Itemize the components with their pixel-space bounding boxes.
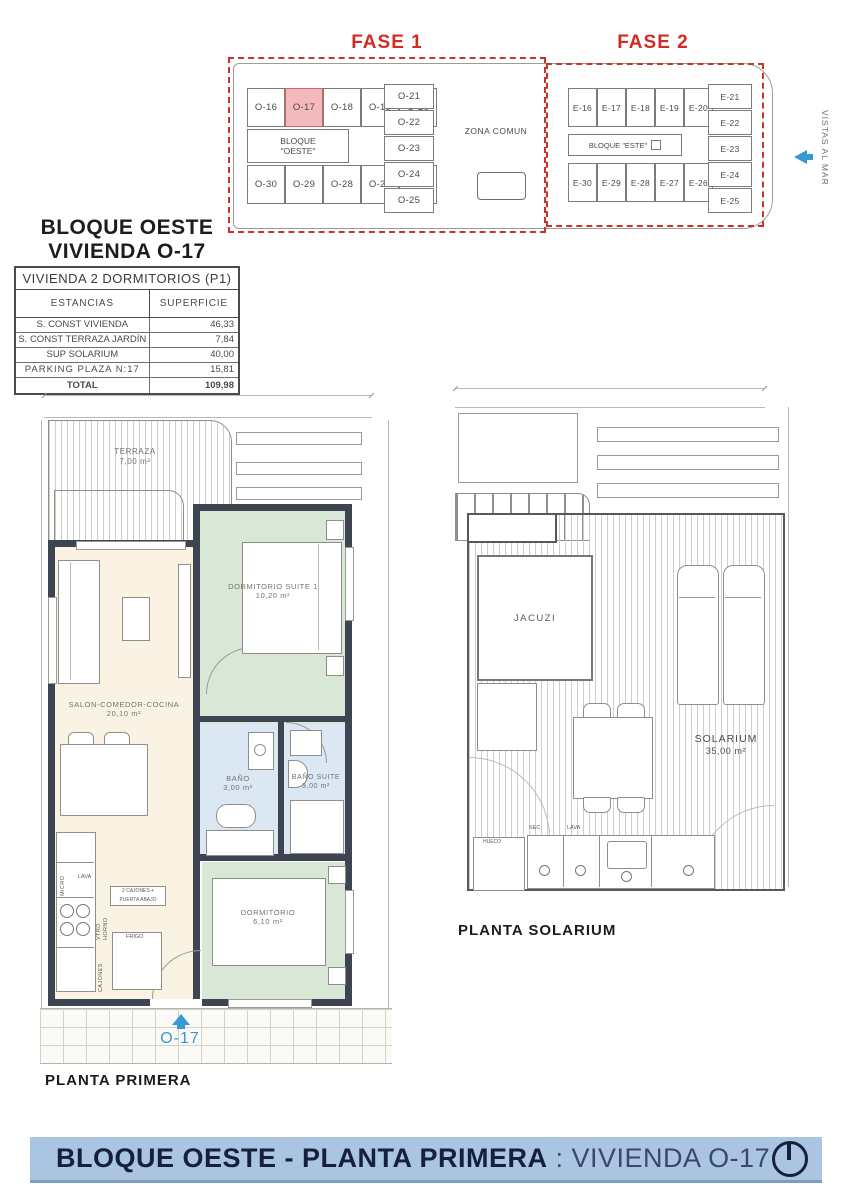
dimension-line bbox=[788, 407, 789, 887]
counter-divider bbox=[599, 835, 600, 887]
hob-burner bbox=[76, 904, 90, 918]
wall-suite-bath bbox=[198, 716, 346, 722]
walkway bbox=[40, 1008, 392, 1064]
planta-solarium-plan: JACUZI SOLARIUM 35,00 m² HUECO SEC LAVA bbox=[455, 385, 793, 910]
fridge-label: FRIGO bbox=[124, 934, 145, 940]
table-total-row: TOTAL 109,98 bbox=[16, 378, 238, 393]
table-row: S. CONST VIVIENDA 46,33 bbox=[16, 318, 238, 333]
pergola-slat bbox=[597, 483, 779, 498]
room-area: 20,10 m² bbox=[54, 709, 194, 718]
unit-cell: E-18 bbox=[626, 88, 655, 127]
block-oeste-line1: BLOQUE bbox=[280, 136, 315, 146]
shower bbox=[206, 830, 274, 856]
window bbox=[345, 890, 354, 954]
unit-cell: E-19 bbox=[655, 88, 684, 127]
salon-label: SALON-COMEDOR-COCINA 20,10 m² bbox=[54, 700, 194, 719]
terraza-label: TERRAZA 7,00 m² bbox=[70, 447, 200, 467]
row-name: PARKING PLAZA N:17 bbox=[16, 363, 150, 377]
table-title: VIVIENDA 2 DORMITORIOS (P1) bbox=[16, 268, 238, 290]
room-area: 7,00 m² bbox=[70, 457, 200, 467]
unit-cell: E-22 bbox=[708, 110, 752, 135]
room-area: 3,00 m² bbox=[202, 783, 274, 792]
planta-primera-caption: PLANTA PRIMERA bbox=[45, 1072, 192, 1089]
unit-cell: O-18 bbox=[323, 88, 361, 127]
deck-notch bbox=[469, 515, 557, 543]
kitchen-segment-line bbox=[56, 897, 94, 898]
unit-cell: E-17 bbox=[597, 88, 626, 127]
entrance-arrow-icon bbox=[172, 1014, 190, 1025]
entrance-opening bbox=[150, 999, 202, 1006]
tv-unit bbox=[178, 564, 191, 678]
unit-cell: E-23 bbox=[708, 136, 752, 161]
hob-burner bbox=[76, 922, 90, 936]
fase2-block-label: BLOQUE "ESTE" bbox=[568, 134, 682, 156]
unit-cell: O-25 bbox=[384, 188, 434, 213]
unit-cell: E-27 bbox=[655, 163, 684, 202]
fase1-block-label: BLOQUE "OESTE" bbox=[247, 129, 349, 163]
room-name: BAÑO SUITE bbox=[284, 774, 348, 783]
total-label: TOTAL bbox=[16, 378, 150, 393]
unit-cell: O-16 bbox=[247, 88, 285, 127]
hob-burner bbox=[60, 904, 74, 918]
room-name: SALON-COMEDOR-COCINA bbox=[54, 700, 194, 709]
dimension-line bbox=[41, 420, 42, 1008]
dining-table bbox=[60, 744, 148, 816]
room-name: TERRAZA bbox=[70, 447, 200, 457]
vistas-al-mar-arrow-stem bbox=[807, 154, 813, 160]
col-header-estancias: ESTANCIAS bbox=[16, 290, 150, 317]
table-row: PARKING PLAZA N:17 15,81 bbox=[16, 363, 238, 378]
kitchen-label-cajones: CAJONES bbox=[98, 952, 104, 992]
kitchen-label-micro: MICRO bbox=[60, 866, 66, 896]
room-name: DORMITORIO SUITE 1 bbox=[210, 582, 336, 591]
hueco-label: HUECO bbox=[481, 839, 503, 845]
lounger-headrest-line bbox=[725, 597, 761, 598]
pool bbox=[477, 172, 526, 200]
fase1-title: FASE 1 bbox=[228, 32, 546, 54]
unit-cell: E-29 bbox=[597, 163, 626, 202]
unit-cell: O-29 bbox=[285, 165, 323, 204]
counter-divider bbox=[563, 835, 564, 887]
entrance-arrow-stem bbox=[177, 1025, 185, 1029]
stairs-hatch bbox=[477, 683, 537, 751]
room-area: 6,10 m² bbox=[220, 917, 316, 926]
unit-cell: O-28 bbox=[323, 165, 361, 204]
outdoor-chair bbox=[583, 797, 611, 813]
nightstand bbox=[328, 967, 346, 985]
unit-cell: O-22 bbox=[384, 110, 434, 135]
counter-divider bbox=[651, 835, 652, 887]
vistas-al-mar-label: VISTAS AL MAR bbox=[820, 110, 830, 220]
footer-banner: BLOQUE OESTE - PLANTA PRIMERA : VIVIENDA… bbox=[30, 1137, 822, 1183]
floorplan-sheet: { "site_plan": { "fase1": { "title": "FA… bbox=[0, 0, 847, 1200]
kitchen-label-lava: LAVA bbox=[78, 874, 91, 880]
terraza-railing bbox=[54, 490, 184, 544]
room-name: DORMITORIO bbox=[220, 908, 316, 917]
nightstand bbox=[326, 520, 344, 540]
unit-cell: O-30 bbox=[247, 165, 285, 204]
sink bbox=[290, 730, 322, 756]
sink-bowl bbox=[254, 744, 266, 756]
window bbox=[76, 541, 186, 550]
table-row: S. CONST TERRAZA JARDÍN 7,84 bbox=[16, 333, 238, 348]
unit-cell: O-21 bbox=[384, 84, 434, 109]
row-value: 40,00 bbox=[150, 348, 238, 362]
unit-cell: E-16 bbox=[568, 88, 597, 127]
site-plan: FASE 1 FASE 2 O-16 O-17 O-18 O-19 O-20 B… bbox=[0, 0, 847, 250]
fase2-bottom-row: E-30 E-29 E-28 E-27 E-26 bbox=[568, 163, 713, 202]
pergola-slat bbox=[236, 432, 362, 445]
page-title-line2: VIVIENDA O-17 bbox=[18, 240, 236, 264]
room-name: SOLARIUM bbox=[667, 733, 785, 746]
block-este-marker bbox=[651, 140, 661, 150]
col-header-superficie: SUPERFICIE bbox=[150, 290, 238, 317]
north-indicator-needle bbox=[787, 1143, 791, 1160]
north-indicator-icon bbox=[772, 1141, 808, 1177]
sofa bbox=[58, 560, 100, 684]
washer-appliance bbox=[607, 841, 647, 869]
dormitorio-label: DORMITORIO 6,10 m² bbox=[220, 908, 316, 927]
pergola-slat bbox=[236, 487, 362, 500]
unit-cell: E-24 bbox=[708, 162, 752, 187]
dimension-line bbox=[455, 407, 765, 408]
pergola-slat bbox=[236, 462, 362, 475]
fase2-stack: E-21 E-22 E-23 E-24 E-25 bbox=[708, 84, 752, 213]
room-name: BAÑO bbox=[202, 774, 274, 783]
unit-cell: O-24 bbox=[384, 162, 434, 187]
outdoor-table bbox=[573, 717, 653, 799]
kitchen-note: 2 CAJONES + PUERTA ABAJO bbox=[110, 886, 166, 906]
kitchen-segment-line bbox=[56, 862, 94, 863]
unit-cell: E-30 bbox=[568, 163, 597, 202]
lounger-headrest-line bbox=[679, 597, 715, 598]
bano-label: BAÑO 3,00 m² bbox=[202, 774, 274, 793]
window bbox=[228, 999, 312, 1008]
block-oeste-line2: "OESTE" bbox=[281, 146, 316, 156]
surface-table: VIVIENDA 2 DORMITORIOS (P1) ESTANCIAS SU… bbox=[14, 266, 240, 395]
lava-label: LAVA bbox=[567, 825, 580, 831]
hob-burner bbox=[60, 922, 74, 936]
kitchen-label-horno: HORNO bbox=[103, 904, 109, 940]
pergola-slat bbox=[597, 427, 779, 442]
fridge bbox=[112, 932, 162, 990]
unit-cell: E-28 bbox=[626, 163, 655, 202]
table-row: SUP SOLARIUM 40,00 bbox=[16, 348, 238, 363]
room-area: 35,00 m² bbox=[667, 746, 785, 757]
row-value: 46,33 bbox=[150, 318, 238, 332]
dimension-line bbox=[388, 420, 389, 1008]
footer-title-bold: BLOQUE OESTE - PLANTA PRIMERA bbox=[56, 1143, 548, 1174]
planta-primera-plan: TERRAZA 7,00 m² DORMITORIO SUITE 1 10,20… bbox=[40, 392, 392, 1082]
room-area: 3,00 m² bbox=[284, 783, 348, 792]
shower bbox=[290, 800, 344, 854]
unit-cell: E-21 bbox=[708, 84, 752, 109]
sec-label: SEC bbox=[529, 825, 540, 831]
solarium-label: SOLARIUM 35,00 m² bbox=[667, 733, 785, 757]
page-title: BLOQUE OESTE VIVIENDA O-17 bbox=[18, 216, 236, 264]
dimension-tick bbox=[762, 386, 768, 392]
room-area: 10,20 m² bbox=[210, 591, 336, 600]
dimension-line bbox=[44, 395, 372, 396]
unit-cell: O-23 bbox=[384, 136, 434, 161]
toilet bbox=[216, 804, 256, 828]
note-line1: 2 CAJONES + bbox=[111, 887, 165, 896]
coffee-table bbox=[122, 597, 150, 641]
window bbox=[345, 547, 354, 621]
faucet-symbol bbox=[621, 871, 632, 882]
roof-outline bbox=[458, 413, 578, 483]
window bbox=[48, 597, 57, 684]
pergola-slat bbox=[597, 455, 779, 470]
row-name: SUP SOLARIUM bbox=[16, 348, 150, 362]
row-value: 15,81 bbox=[150, 363, 238, 377]
nightstand bbox=[328, 866, 346, 884]
unit-cell: E-25 bbox=[708, 188, 752, 213]
vistas-al-mar-arrow-icon bbox=[794, 150, 807, 164]
sun-lounger bbox=[723, 565, 765, 705]
dimension-tick bbox=[369, 393, 375, 399]
table-header-row: ESTANCIAS SUPERFICIE bbox=[16, 290, 238, 318]
fase1-stack: O-21 O-22 O-23 O-24 O-25 bbox=[384, 84, 434, 213]
row-value: 7,84 bbox=[150, 333, 238, 347]
kitchen-segment-line bbox=[56, 947, 94, 948]
zona-comun-label: ZONA COMUN bbox=[450, 126, 542, 136]
kitchen-label-vtro: VTRO bbox=[96, 904, 102, 940]
entrance-unit-label: O-17 bbox=[150, 1030, 210, 1048]
page-title-line1: BLOQUE OESTE bbox=[18, 216, 236, 240]
note-line2: PUERTA ABAJO bbox=[111, 896, 165, 905]
faucet-symbol bbox=[575, 865, 586, 876]
faucet-symbol bbox=[683, 865, 694, 876]
outdoor-chair bbox=[617, 797, 645, 813]
fase2-top-row: E-16 E-17 E-18 E-19 E-20 bbox=[568, 88, 713, 127]
sofa-back-line bbox=[70, 562, 71, 680]
row-name: S. CONST TERRAZA JARDÍN bbox=[16, 333, 150, 347]
dimension-line bbox=[44, 417, 372, 418]
sun-lounger bbox=[677, 565, 719, 705]
dimension-line bbox=[455, 388, 765, 389]
unit-cell-highlighted: O-17 bbox=[285, 88, 323, 127]
faucet-symbol bbox=[539, 865, 550, 876]
total-value: 109,98 bbox=[150, 378, 238, 393]
bano-suite-label: BAÑO SUITE 3,00 m² bbox=[284, 774, 348, 792]
block-este-label: BLOQUE "ESTE" bbox=[589, 141, 647, 150]
fase2-title: FASE 2 bbox=[545, 32, 761, 54]
nightstand bbox=[326, 656, 344, 676]
jacuzzi: JACUZI bbox=[477, 555, 593, 681]
footer-title-regular: : VIVIENDA O-17 bbox=[556, 1143, 771, 1174]
jacuzzi-label: JACUZI bbox=[479, 557, 591, 679]
suite-label: DORMITORIO SUITE 1 10,20 m² bbox=[210, 582, 336, 601]
row-name: S. CONST VIVIENDA bbox=[16, 318, 150, 332]
planta-solarium-caption: PLANTA SOLARIUM bbox=[458, 922, 616, 939]
hueco-hatch bbox=[473, 837, 525, 891]
